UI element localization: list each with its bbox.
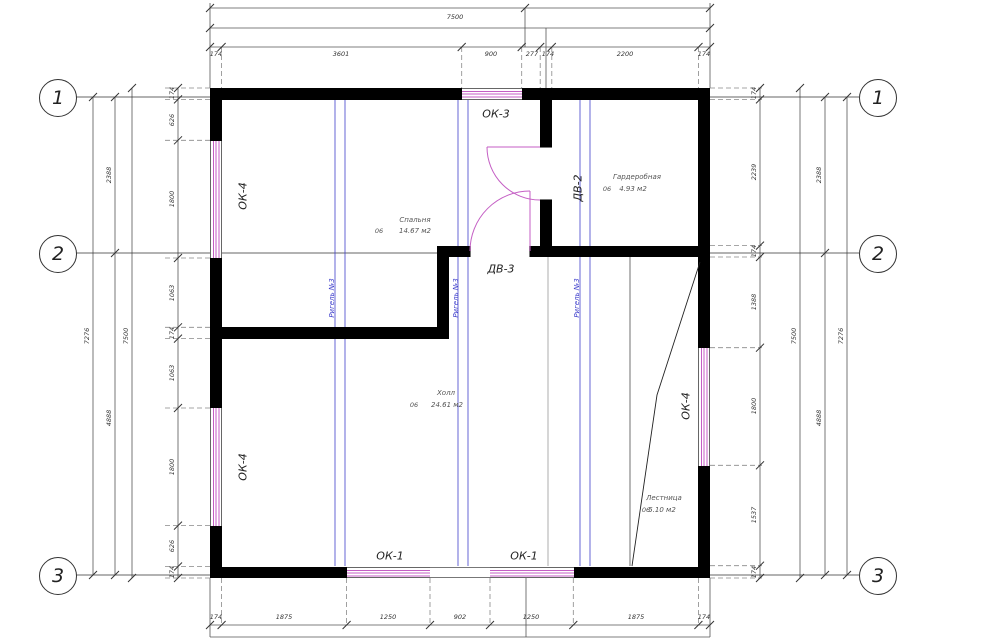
dim-right-overall: 7500 [790, 328, 798, 345]
axis-bubble-left-3: 3 [39, 557, 77, 595]
dim-left: 626 [168, 540, 176, 552]
label-window-ok1-right: ОК-1 [510, 550, 537, 563]
room-num-stairs: 06 [642, 506, 650, 514]
dim-top-overall: 7500 [447, 13, 464, 21]
label-beam-3: Ригель №3 [573, 278, 581, 317]
room-name-hall: Холл [437, 389, 455, 397]
floor-plan-sheet: 1 2 3 1 2 3 7500 174 3601 900 277 174 22… [0, 0, 1000, 639]
dim-left-seg: 4888 [105, 410, 113, 427]
dim-left-overall: 7500 [122, 328, 130, 345]
room-name-wardrobe: Гардеробная [613, 173, 661, 181]
axis-bubble-right-3: 3 [859, 557, 897, 595]
label-door-dv2: ДВ-2 [572, 174, 585, 201]
room-num-hall: 06 [410, 401, 418, 409]
label-window-ok4-right: ОК-4 [680, 392, 693, 419]
dim-right: 174 [750, 566, 758, 578]
dim-right: 174 [750, 87, 758, 99]
dim-bottom: 1875 [276, 613, 293, 621]
label-window-ok3: ОК-3 [482, 108, 509, 121]
axis-number: 2 [872, 243, 884, 265]
dim-top: 900 [485, 50, 497, 58]
axis-number: 3 [52, 565, 64, 587]
axis-bubble-right-2: 2 [859, 235, 897, 273]
dim-bottom: 1250 [380, 613, 397, 621]
dim-left: 1063 [168, 285, 176, 302]
label-window-ok4-left-bottom: ОК-4 [237, 453, 250, 480]
label-beam-2: Ригель №3 [452, 278, 460, 317]
dim-right-seg: 2388 [815, 167, 823, 184]
dim-right-seg: 4888 [815, 410, 823, 427]
dim-left: 174 [168, 87, 176, 99]
dim-top: 174 [542, 50, 554, 58]
dim-right: 174 [750, 245, 758, 257]
dim-right: 1537 [750, 507, 758, 524]
dim-right: 1800 [750, 398, 758, 415]
dim-left: 1063 [168, 365, 176, 382]
label-window-ok1-left: ОК-1 [376, 550, 403, 563]
axis-number: 2 [52, 243, 64, 265]
dim-right-outer: 7276 [837, 328, 845, 345]
label-door-dv3: ДВ-3 [487, 263, 514, 276]
room-num-wardrobe: 06 [603, 185, 611, 193]
dim-left: 174 [168, 327, 176, 339]
dim-right: 1388 [750, 294, 758, 311]
dim-top: 277 [526, 50, 538, 58]
dim-left: 1800 [168, 459, 176, 476]
doors-stairs-layer [0, 0, 1000, 639]
axis-number: 3 [872, 565, 884, 587]
dim-top: 174 [698, 50, 710, 58]
axis-number: 1 [52, 87, 64, 109]
room-area-wardrobe: 4.93 м2 [619, 185, 647, 193]
dim-left-outer: 7276 [83, 328, 91, 345]
dim-top: 3601 [333, 50, 350, 58]
dim-left: 626 [168, 114, 176, 126]
axis-bubble-right-1: 1 [859, 79, 897, 117]
dim-left-seg: 2388 [105, 167, 113, 184]
axis-number: 1 [872, 87, 884, 109]
room-name-stairs: Лестница [646, 494, 682, 502]
dim-bottom: 1875 [628, 613, 645, 621]
dim-top: 2200 [617, 50, 634, 58]
room-area-bedroom: 14.67 м2 [399, 227, 431, 235]
dim-bottom: 1250 [523, 613, 540, 621]
room-area-hall: 24.61 м2 [431, 401, 463, 409]
dim-bottom: 174 [210, 613, 222, 621]
room-name-bedroom: Спальня [399, 216, 430, 224]
dim-top: 174 [210, 50, 222, 58]
dim-bottom: 902 [454, 613, 466, 621]
dim-left: 1800 [168, 191, 176, 208]
label-beam-1: Ригель №3 [328, 278, 336, 317]
room-num-bedroom: 06 [375, 227, 383, 235]
dim-right: 2239 [750, 164, 758, 181]
axis-bubble-left-2: 2 [39, 235, 77, 273]
axis-bubble-left-1: 1 [39, 79, 77, 117]
dim-bottom: 174 [698, 613, 710, 621]
label-window-ok4-left-top: ОК-4 [237, 182, 250, 209]
room-area-stairs: 5.10 м2 [648, 506, 676, 514]
dim-left: 174 [168, 566, 176, 578]
